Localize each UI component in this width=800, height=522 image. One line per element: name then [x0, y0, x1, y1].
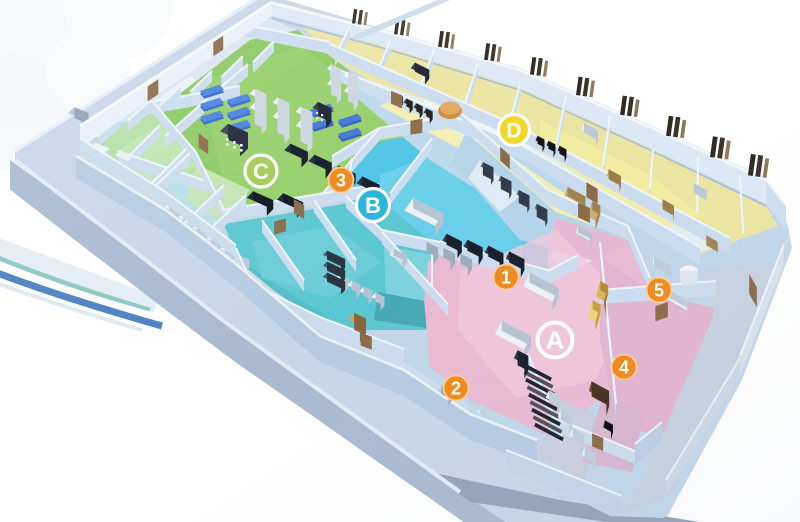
svg-text:C: C	[253, 159, 269, 184]
svg-text:1: 1	[501, 267, 511, 287]
svg-text:B: B	[365, 193, 381, 218]
svg-text:D: D	[506, 120, 521, 143]
svg-text:5: 5	[654, 280, 664, 300]
svg-text:A: A	[546, 325, 565, 355]
svg-text:3: 3	[336, 170, 346, 190]
svg-text:4: 4	[619, 357, 629, 377]
svg-text:2: 2	[451, 378, 461, 398]
